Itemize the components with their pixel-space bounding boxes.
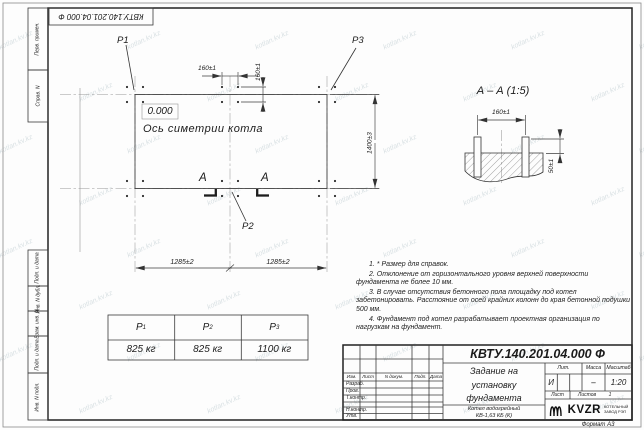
load-point-p2-label: Р2 [242,222,254,232]
drawing-title-line3: фундамента [443,392,545,404]
load-table-value-p2: 825 кг [175,340,241,360]
section-dim-50: 50±1 [547,152,557,180]
title-block-doc-number: КВТУ.140.201.04.000 Ф [443,345,632,363]
sheets-value: 1 [603,391,617,399]
margin-label-sprav-n: Справ. N [28,70,48,122]
section-dim-160: 160±1 [481,109,521,118]
load-table-header-p3: Р3 [241,315,307,340]
elevation-mark: 0.000 [142,104,178,119]
kvzr-logo-icon [549,403,565,417]
scale-label: Масштаб [605,363,632,374]
note-2: 2. Отклонение от горизонтального уровня … [356,271,632,288]
col-header-list: Лист [360,373,376,381]
kvzr-logo-subtext: КОТЕЛЬНЫЙ ЗАВОД РЭП [604,405,628,414]
product-name-line2: КВ-1,63 КБ (К) [443,413,545,420]
mass-value: – [582,374,605,391]
drawing-title-line2: установку [443,379,545,391]
drawing-sheet: kotlan.kv.kzkotlan.kv.kzkotlan.kv.kzkotl… [0,0,644,430]
drawing-title-line1: Задание на [443,365,545,377]
note-3: 3. В случае отсутствия бетонного пола пл… [356,289,632,315]
dim-160-vertical: 160±1 [254,58,264,86]
top-stamp-number: КВТУ.140.201.04.000 Ф [49,8,153,25]
row-label-tkontr: Т.контр. [344,395,378,402]
dim-160-horizontal: 160±1 [192,65,222,74]
margin-label-inv-dubl: Инв. N дубл. [28,286,48,311]
format-label: Формат А3 [568,421,628,429]
col-header-sign: Подп. [412,373,429,381]
col-header-izm: Изм. [343,373,360,381]
col-header-doc: N докум. [376,373,412,381]
load-point-p1-label: Р1 [117,36,129,46]
margin-label-inv-podl: Инв. N подл. [28,373,48,420]
margin-label-podp-data-1: Подп. и дата [28,250,48,286]
note-4: 4. Фундамент под котел разрабатывает про… [356,316,632,333]
margin-label-podp-data-2: Подп. и дата [28,336,48,373]
kvzr-logo: KVZR КОТЕЛЬНЫЙ ЗАВОД РЭП [545,399,632,420]
kvzr-logo-text: KVZR [568,404,601,416]
row-label-utv: Утв. [344,414,378,421]
load-point-p3-label: Р3 [352,36,364,46]
dim-1285-left: 1285±2 [152,257,212,267]
dim-1400: 1400±3 [366,128,376,159]
margin-label-vzam-inv: Взам. инв. N [28,311,48,336]
section-letter-left: А [199,173,207,185]
sheet-label: Лист [545,391,570,399]
section-view-title: А – А (1:5) [458,84,548,98]
notes-block: 1. * Размер для справок. 2. Отклонение о… [356,261,632,334]
lit-value: И [545,374,557,391]
section-letter-right: А [261,173,269,185]
note-1: 1. * Размер для справок. [356,261,632,270]
load-table-header-p1: Р1 [108,315,174,340]
anchor-bolt-dots [126,86,336,197]
row-label-prov: Пров. [344,388,378,395]
dim-1285-right: 1285±2 [248,257,308,267]
load-table-header-p2: Р2 [175,315,241,340]
sheets-label: Листов [573,391,601,399]
lit-label: Лит. [545,363,582,374]
load-table-value-p1: 825 кг [108,340,174,360]
plan-view [60,45,380,273]
margin-label-perv-primen: Перв. примен. [28,8,48,70]
mass-label: Масса [582,363,605,374]
axis-of-symmetry-label: Ось симетрии котла [143,124,263,135]
col-header-date: Дата [429,373,443,381]
row-label-razrab: Разраб. [344,381,378,388]
product-name-line1: Котел водогрейный [443,406,545,413]
load-table-value-p3: 1100 кг [241,340,307,360]
scale-value: 1:20 [605,374,632,391]
